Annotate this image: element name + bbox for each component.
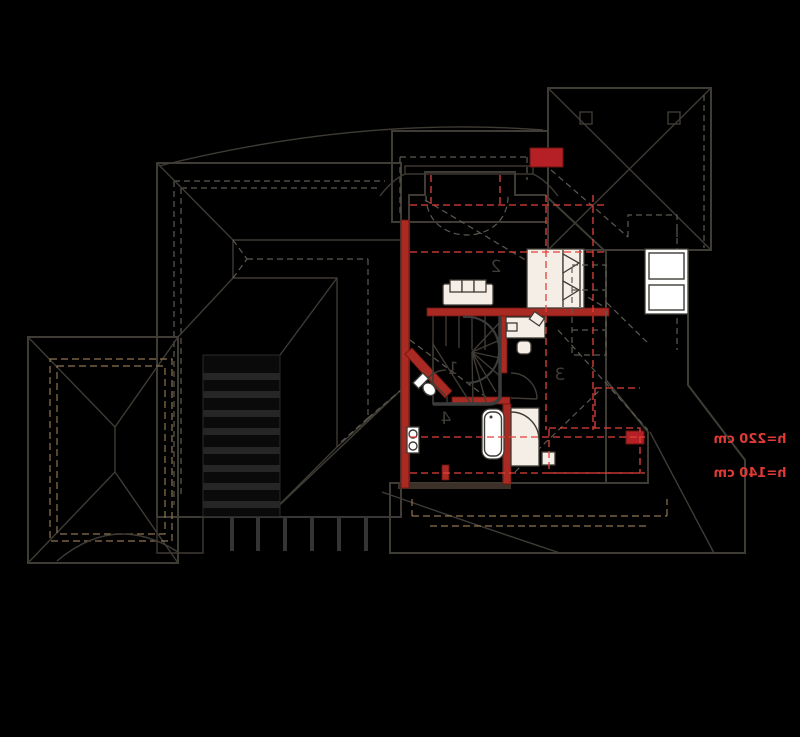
room-label-2: 2 <box>491 257 502 277</box>
sofa <box>443 280 493 305</box>
room-label-1: 1 <box>448 359 459 379</box>
room-divider-wall <box>427 308 609 316</box>
facade-window <box>645 249 688 314</box>
height-label-upper: h=220 cm <box>713 432 786 447</box>
bathroom-south-wall <box>398 483 511 489</box>
pergola <box>203 355 280 517</box>
chimney-north <box>530 148 563 167</box>
washbasin-cabinet <box>407 427 419 453</box>
bathtub <box>482 409 504 459</box>
bed <box>527 249 584 308</box>
room-label-4: 4 <box>441 409 452 429</box>
desk-item <box>507 323 517 331</box>
office-chair <box>517 341 531 354</box>
floor-plan-canvas: 1 2 3 4 h=220 cm h=140 cm <box>0 0 800 737</box>
room-label-3: 3 <box>555 365 566 385</box>
floor-plan-drawing: 1 2 3 4 h=220 cm h=140 cm <box>0 0 800 737</box>
height-label-lower: h=140 cm <box>713 466 786 481</box>
